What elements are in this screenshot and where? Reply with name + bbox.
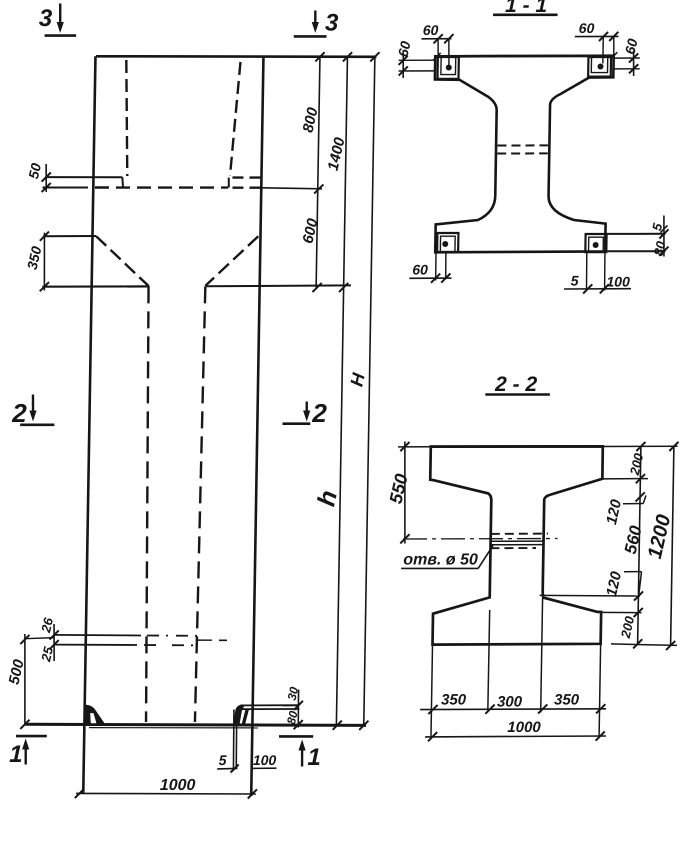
svg-text:5: 5 bbox=[219, 752, 227, 768]
svg-text:2: 2 bbox=[11, 398, 27, 428]
svg-text:1: 1 bbox=[307, 744, 321, 771]
svg-text:350: 350 bbox=[554, 692, 580, 709]
svg-text:5: 5 bbox=[571, 273, 579, 289]
svg-text:отв. ø 50: отв. ø 50 bbox=[403, 552, 478, 569]
svg-text:60: 60 bbox=[423, 22, 439, 38]
svg-text:2: 2 bbox=[311, 398, 327, 428]
svg-text:3: 3 bbox=[325, 10, 339, 37]
svg-text:60: 60 bbox=[579, 20, 595, 36]
svg-text:100: 100 bbox=[606, 274, 630, 290]
svg-text:100: 100 bbox=[253, 752, 277, 768]
svg-text:300: 300 bbox=[497, 694, 523, 711]
svg-text:3: 3 bbox=[39, 5, 53, 32]
svg-text:60: 60 bbox=[412, 262, 428, 278]
svg-text:350: 350 bbox=[441, 692, 467, 709]
svg-text:1000: 1000 bbox=[160, 777, 196, 794]
svg-text:2 - 2: 2 - 2 bbox=[494, 373, 538, 396]
svg-text:1000: 1000 bbox=[507, 719, 541, 736]
svg-text:1: 1 bbox=[9, 741, 23, 768]
